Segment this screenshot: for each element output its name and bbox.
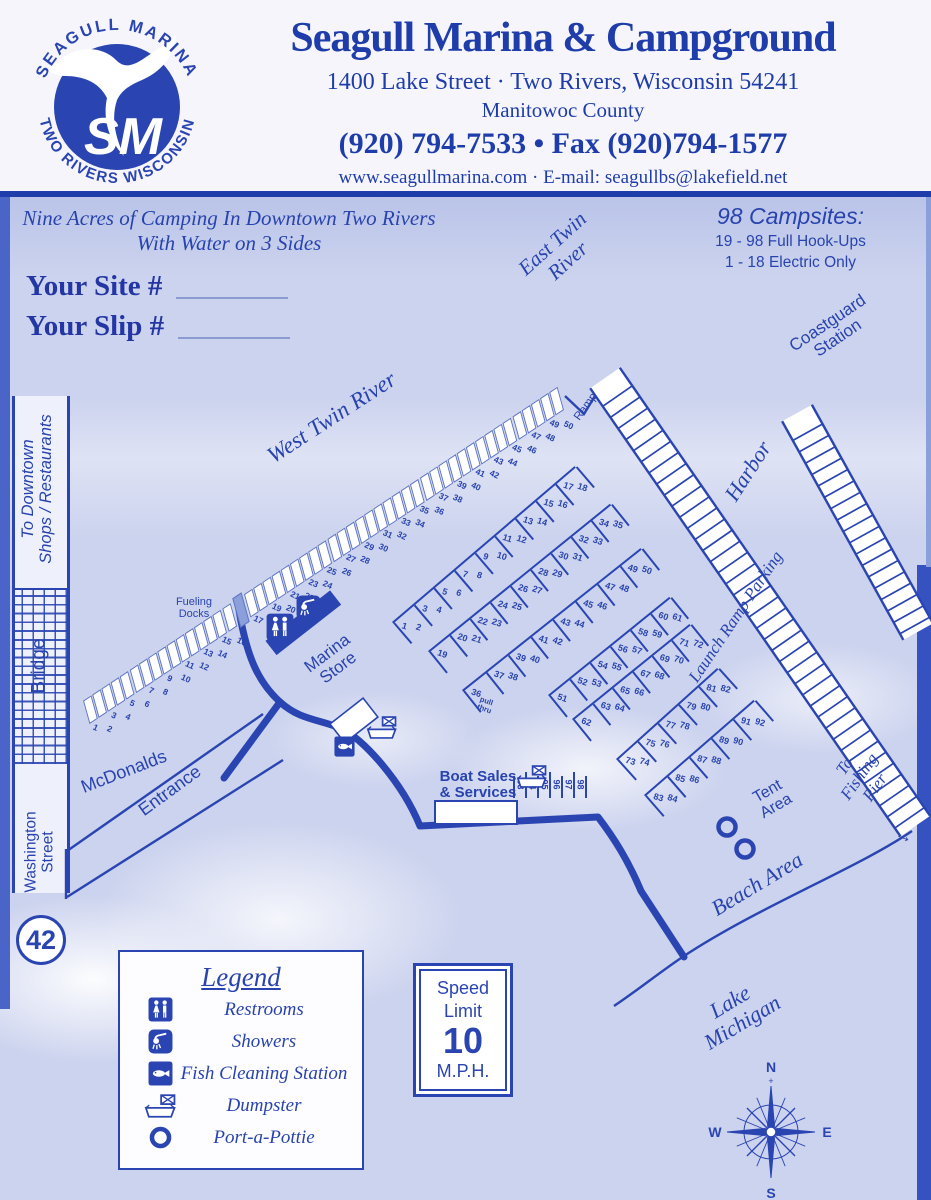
site-number: 29 (551, 568, 563, 580)
dumpster-icon (516, 763, 548, 795)
site-number: 7 (462, 570, 469, 580)
site-number: 18 (577, 482, 589, 494)
legend-item-label: Dumpster (180, 1095, 362, 1117)
site-number: 71 (678, 637, 690, 649)
limit-word: Limit (421, 1000, 505, 1023)
restrooms-icon (140, 997, 180, 1022)
compass-south: S (766, 1185, 775, 1200)
washington-street-label: Washington Street (23, 811, 56, 892)
site-number: 1 (401, 621, 408, 631)
site-number: 19 (436, 648, 448, 660)
site-number: 6 (455, 588, 462, 598)
site-number: 64 (614, 702, 626, 714)
site-number: 20 (456, 632, 468, 644)
site-number: 73 (624, 756, 636, 767)
site-number: 96 (552, 779, 561, 789)
site-number: 5 (441, 587, 448, 597)
compass-plus: + (768, 1076, 773, 1086)
coastguard-pier (782, 405, 931, 640)
site-number: 82 (719, 684, 731, 695)
bridge-label: Bridge (30, 639, 51, 694)
site-number: 87 (696, 754, 708, 766)
compass-east: E (822, 1124, 831, 1140)
site-number: 79 (685, 701, 697, 712)
legend-item-label: Fish Cleaning Station (180, 1063, 362, 1085)
campsite-row-93-98: 939495969798 (513, 798, 585, 828)
site-number: 84 (666, 793, 678, 805)
site-number: 25 (511, 601, 523, 613)
site-number: 55 (611, 661, 623, 673)
site-number: 68 (653, 670, 665, 682)
fish-cleaning-icon (140, 1061, 180, 1086)
showers-icon (296, 595, 321, 625)
site-number: 45 (582, 599, 594, 611)
porta-pottie-icon (140, 1125, 180, 1150)
site-number: 83 (652, 792, 664, 804)
speed-word: Speed (421, 977, 505, 1000)
showers-icon (140, 1029, 180, 1054)
speed-value: 10 (421, 1022, 505, 1060)
site-number: 57 (631, 645, 643, 657)
site-number: 65 (619, 685, 631, 697)
brochure-page: SM SEAGULL MARINA TWO RIVERS WISCONSIN S… (0, 0, 931, 1200)
site-number: 77 (665, 719, 677, 730)
site-number: 8 (476, 571, 483, 581)
site-number: 74 (638, 757, 650, 768)
dumpster-icon (140, 1092, 180, 1120)
site-number: 70 (672, 655, 684, 667)
site-number: 24 (497, 599, 509, 611)
site-number: 27 (531, 584, 543, 596)
site-number: 90 (732, 736, 744, 748)
legend-item-label: Restrooms (180, 999, 362, 1021)
site-number: 11 (502, 533, 514, 544)
site-number: 28 (537, 567, 549, 579)
site-number: 38 (506, 671, 518, 683)
site-number: 32 (577, 534, 589, 546)
boat-sales-label: Boat Sales & Services (440, 769, 517, 801)
site-number: 72 (692, 639, 704, 651)
site-number: 44 (573, 618, 585, 630)
fish-cleaning-icon (334, 736, 355, 762)
site-number: 17 (562, 481, 574, 493)
site-number: 76 (659, 738, 671, 749)
site-number: 30 (557, 550, 569, 562)
site-number: 60 (657, 611, 669, 623)
site-number: 49 (626, 563, 638, 575)
site-number: 58 (637, 627, 649, 639)
compass-west: W (708, 1124, 722, 1140)
site-number: 41 (537, 634, 549, 646)
site-number: 12 (516, 534, 528, 546)
site-number: 15 (542, 498, 554, 510)
site-number: 86 (688, 774, 700, 786)
site-number: 3 (421, 604, 428, 614)
site-number: 67 (639, 669, 651, 681)
legend-item: Showers (120, 1026, 362, 1057)
site-number: 16 (556, 499, 568, 511)
site-number: 78 (679, 720, 691, 731)
site-number: 26 (517, 583, 529, 595)
site-number: 39 (515, 652, 527, 664)
site-number: 35 (612, 519, 624, 531)
site-number: 89 (718, 735, 730, 747)
speed-limit-sign: Speed Limit 10 M.P.H. (413, 963, 513, 1097)
site-number: 92 (754, 717, 766, 729)
dumpster-icon (366, 714, 398, 746)
site-number: 31 (571, 552, 583, 564)
site-number: 47 (604, 581, 616, 593)
site-number: 46 (596, 600, 608, 612)
site-number: 52 (576, 676, 588, 688)
site-number: 98 (576, 779, 585, 789)
site-number: 23 (491, 617, 503, 629)
legend-box: Legend Restrooms Showers Fish Cleaning S… (118, 950, 364, 1170)
site-number: 33 (592, 535, 604, 547)
site-number: 97 (564, 779, 573, 789)
site-number: 42 (551, 636, 563, 648)
site-number: 50 (640, 565, 652, 577)
legend-title: Legend (120, 962, 362, 993)
compass-north: N (766, 1059, 776, 1075)
legend-item: Restrooms (120, 994, 362, 1025)
site-number: 22 (476, 616, 488, 628)
site-number: 4 (435, 605, 442, 615)
site-number: 14 (536, 516, 548, 528)
site-number: 88 (710, 755, 722, 767)
legend-item-label: Port-a-Pottie (180, 1127, 362, 1149)
site-number: 9 (482, 552, 489, 562)
site-number: 59 (651, 628, 663, 640)
restrooms-icon (266, 613, 294, 646)
boat-sales-building (434, 800, 518, 825)
porta-pottie-icon (737, 841, 754, 858)
site-number: 10 (495, 551, 507, 563)
site-number: 48 (618, 583, 630, 595)
legend-item: Dumpster (120, 1090, 362, 1121)
site-number: 63 (600, 701, 612, 713)
site-number: 85 (674, 773, 686, 785)
site-number: 51 (556, 692, 568, 704)
site-number: 21 (470, 633, 482, 645)
site-number: 40 (529, 654, 541, 666)
site-number: 43 (559, 617, 571, 629)
site-number: 75 (645, 738, 657, 749)
legend-item: Port-a-Pottie (120, 1122, 362, 1153)
legend-item: Fish Cleaning Station (120, 1058, 362, 1089)
speed-unit: M.P.H. (421, 1060, 505, 1083)
site-number: 69 (658, 653, 670, 665)
site-number: 61 (671, 612, 683, 624)
site-number: 56 (617, 643, 629, 655)
site-number: 13 (522, 515, 534, 527)
compass-rose: N + S W E (705, 1058, 837, 1200)
site-number: 91 (740, 716, 752, 728)
site-number: 81 (705, 683, 717, 694)
porta-pottie-icon (719, 819, 736, 836)
site-number: 66 (633, 686, 645, 698)
site-number: 62 (580, 716, 592, 728)
site-number: 2 (415, 623, 422, 633)
legend-item-label: Showers (180, 1031, 362, 1053)
site-number: 37 (492, 670, 504, 682)
site-number: 34 (598, 517, 610, 529)
site-number: 54 (596, 660, 608, 672)
site-number: 80 (699, 702, 711, 713)
site-number: 53 (590, 677, 602, 689)
to-downtown-label: To Downtown Shops / Restaurants (20, 414, 56, 564)
